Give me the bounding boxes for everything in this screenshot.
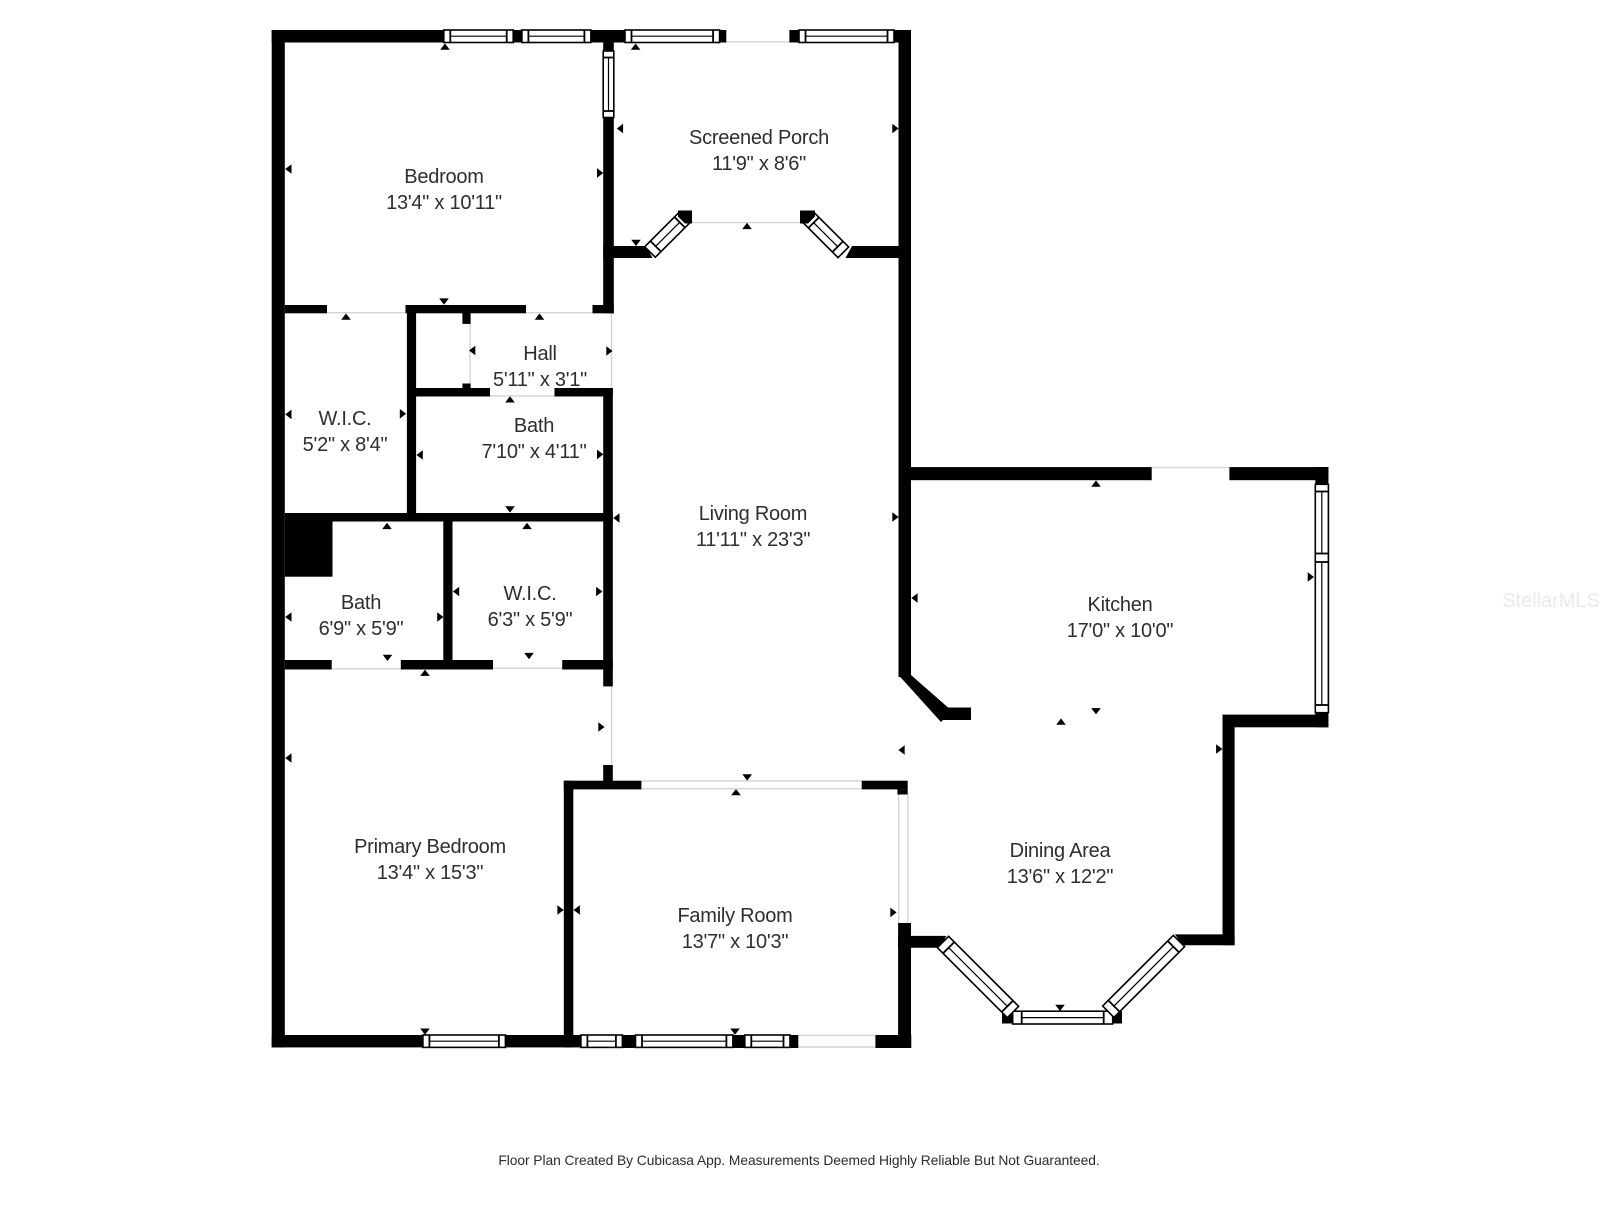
- svg-text:17'0" x 10'0": 17'0" x 10'0": [1067, 620, 1174, 642]
- svg-text:Screened Porch: Screened Porch: [689, 127, 829, 149]
- svg-text:Primary Bedroom: Primary Bedroom: [354, 836, 506, 858]
- svg-text:Hall: Hall: [523, 343, 556, 365]
- svg-text:Living Room: Living Room: [699, 503, 807, 525]
- svg-text:Kitchen: Kitchen: [1088, 594, 1153, 616]
- svg-text:Bath: Bath: [341, 592, 381, 614]
- svg-text:6'3" x 5'9": 6'3" x 5'9": [488, 609, 573, 631]
- svg-text:Bedroom: Bedroom: [404, 166, 483, 188]
- svg-text:13'6" x 12'2": 13'6" x 12'2": [1007, 866, 1114, 888]
- svg-text:5'2" x 8'4": 5'2" x 8'4": [303, 434, 388, 456]
- svg-text:Family Room: Family Room: [677, 905, 792, 927]
- svg-text:13'4" x 10'11": 13'4" x 10'11": [386, 192, 502, 214]
- svg-text:W.I.C.: W.I.C.: [319, 408, 372, 430]
- svg-text:5'11" x 3'1": 5'11" x 3'1": [493, 369, 587, 391]
- svg-text:11'11" x 23'3": 11'11" x 23'3": [696, 529, 810, 551]
- svg-text:7'10" x 4'11": 7'10" x 4'11": [482, 441, 587, 463]
- svg-text:W.I.C.: W.I.C.: [504, 583, 557, 605]
- svg-text:StellarMLS: StellarMLS: [1502, 590, 1600, 612]
- svg-text:6'9" x 5'9": 6'9" x 5'9": [319, 618, 404, 640]
- svg-text:Dining Area: Dining Area: [1010, 840, 1112, 862]
- svg-text:11'9" x 8'6": 11'9" x 8'6": [712, 153, 806, 175]
- svg-text:13'4" x 15'3": 13'4" x 15'3": [377, 862, 484, 884]
- svg-text:Floor Plan Created By Cubicasa: Floor Plan Created By Cubicasa App. Meas…: [498, 1153, 1099, 1168]
- svg-text:Bath: Bath: [514, 415, 554, 437]
- svg-text:13'7" x 10'3": 13'7" x 10'3": [682, 931, 789, 953]
